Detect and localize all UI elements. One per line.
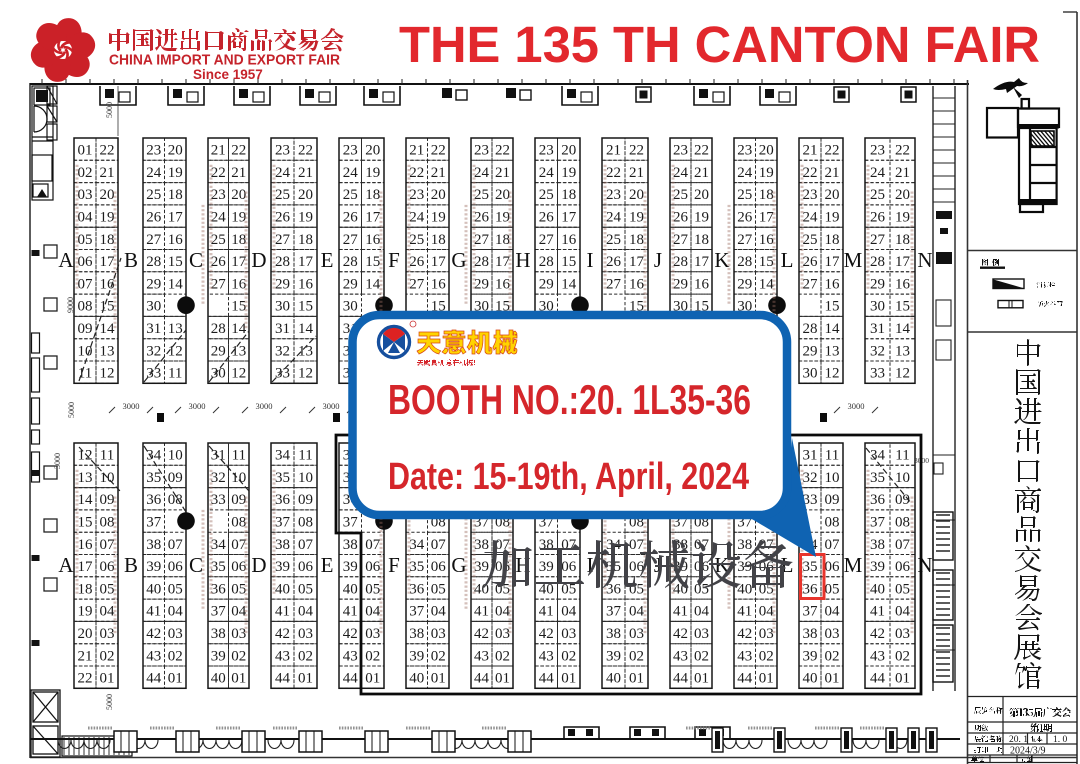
svg-text:37: 37 [870,515,886,531]
svg-text:15: 15 [78,515,93,531]
svg-text:17: 17 [759,210,775,226]
svg-text:41: 41 [275,604,290,620]
svg-text:32: 32 [146,343,161,359]
svg-text:29: 29 [870,276,885,292]
svg-text:23: 23 [673,143,688,159]
svg-text:41: 41 [673,604,688,620]
svg-text:F: F [388,248,400,272]
svg-text:35: 35 [275,470,290,486]
svg-text:22: 22 [629,143,644,159]
svg-text:18: 18 [168,187,183,203]
svg-text:03: 03 [168,626,183,642]
svg-text:05: 05 [231,581,246,597]
svg-text:23: 23 [275,143,290,159]
svg-text:21: 21 [298,165,313,181]
svg-text:26: 26 [474,210,490,226]
svg-text:19: 19 [298,210,313,226]
svg-text:16: 16 [825,276,841,292]
svg-text:37: 37 [606,604,622,620]
svg-text:23: 23 [474,143,489,159]
svg-text:28: 28 [211,321,226,337]
svg-text:05: 05 [694,581,709,597]
svg-text:3000: 3000 [189,401,206,411]
svg-text:42: 42 [539,626,554,642]
svg-text:38: 38 [146,537,161,553]
svg-text:20: 20 [495,187,510,203]
svg-text:17: 17 [895,254,911,270]
svg-text:37: 37 [803,604,819,620]
svg-text:03: 03 [431,626,446,642]
svg-text:11: 11 [895,448,909,464]
svg-text:04: 04 [78,210,94,226]
svg-text:06: 06 [298,559,314,575]
svg-text:40: 40 [870,581,885,597]
svg-text:04: 04 [694,604,710,620]
svg-text:16: 16 [365,232,381,248]
svg-text:44: 44 [673,671,689,687]
svg-text:06: 06 [231,559,247,575]
svg-text:21: 21 [629,165,644,181]
svg-text:42: 42 [673,626,688,642]
svg-text:06: 06 [825,559,841,575]
svg-text:22: 22 [409,165,424,181]
svg-text:26: 26 [803,254,819,270]
svg-text:43: 43 [737,648,752,664]
svg-text:02: 02 [298,648,313,664]
svg-text:04: 04 [431,604,447,620]
svg-text:33: 33 [146,366,161,382]
svg-text:F: F [388,553,400,577]
svg-text:19: 19 [694,210,709,226]
svg-text:16: 16 [100,276,116,292]
svg-text:5000: 5000 [67,402,76,418]
svg-text:17: 17 [168,210,184,226]
svg-text:31: 31 [803,448,818,464]
svg-text:44: 44 [275,671,291,687]
svg-text:36: 36 [870,492,886,508]
svg-text:40: 40 [275,581,290,597]
svg-text:38: 38 [737,537,752,553]
svg-text:02: 02 [895,648,910,664]
svg-text:25: 25 [409,232,424,248]
svg-text:21: 21 [231,165,246,181]
svg-text:10: 10 [168,448,183,464]
svg-text:25: 25 [146,187,161,203]
svg-text:29: 29 [343,276,358,292]
svg-text:01: 01 [365,671,380,687]
svg-text:20: 20 [629,187,644,203]
svg-text:01: 01 [629,671,644,687]
svg-text:44: 44 [343,671,359,687]
svg-text:37: 37 [146,515,162,531]
svg-text:17: 17 [694,254,710,270]
svg-text:21: 21 [100,165,115,181]
svg-text:21: 21 [803,143,818,159]
svg-text:5000: 5000 [105,102,114,118]
svg-text:06: 06 [78,254,94,270]
svg-text:29: 29 [737,276,752,292]
svg-text:28: 28 [803,321,818,337]
svg-text:20: 20 [694,187,709,203]
svg-text:19: 19 [759,165,774,181]
svg-text:37: 37 [211,604,227,620]
svg-text:02: 02 [694,648,709,664]
svg-text:36: 36 [211,581,227,597]
svg-text:16: 16 [231,276,247,292]
svg-text:19: 19 [78,604,93,620]
svg-text:18: 18 [231,232,246,248]
svg-text:27: 27 [803,276,819,292]
svg-text:09: 09 [78,321,93,337]
svg-text:D: D [251,248,266,272]
svg-text:19: 19 [168,165,183,181]
svg-text:04: 04 [298,604,314,620]
svg-text:20: 20 [365,143,380,159]
svg-text:22: 22 [298,143,313,159]
svg-text:13: 13 [168,321,183,337]
svg-text:38: 38 [803,626,818,642]
svg-text:40: 40 [211,671,226,687]
svg-text:08: 08 [895,515,910,531]
svg-text:20: 20 [431,187,446,203]
svg-text:E: E [321,553,334,577]
svg-text:27: 27 [606,276,622,292]
svg-text:04: 04 [825,604,841,620]
svg-text:20: 20 [759,143,774,159]
svg-text:1. 0: 1. 0 [1053,735,1068,745]
svg-text:19: 19 [561,165,576,181]
svg-text:18: 18 [694,232,709,248]
svg-text:34: 34 [211,537,227,553]
svg-text:35: 35 [803,559,818,575]
svg-text:12: 12 [168,343,183,359]
svg-text:A: A [58,553,74,577]
svg-text:06: 06 [431,559,447,575]
svg-text:28: 28 [539,254,554,270]
svg-text:28: 28 [343,254,358,270]
svg-text:20. 1: 20. 1 [1009,735,1028,745]
svg-text:11: 11 [298,448,312,464]
svg-text:26: 26 [146,210,162,226]
svg-text:39: 39 [737,559,752,575]
svg-text:04: 04 [895,604,911,620]
svg-text:18: 18 [561,187,576,203]
svg-text:17: 17 [495,254,511,270]
svg-text:21: 21 [431,165,446,181]
svg-text:42: 42 [737,626,752,642]
svg-text:40: 40 [343,581,358,597]
svg-text:38: 38 [343,537,358,553]
svg-text:21: 21 [895,165,910,181]
svg-text:28: 28 [673,254,688,270]
svg-text:32: 32 [870,343,885,359]
svg-text:02: 02 [168,648,183,664]
svg-text:22: 22 [78,671,93,687]
svg-text:19: 19 [825,210,840,226]
svg-text:24: 24 [275,165,291,181]
svg-text:35: 35 [211,559,226,575]
svg-text:25: 25 [870,187,885,203]
svg-text:18: 18 [629,232,644,248]
svg-text:D: D [251,553,266,577]
svg-text:23: 23 [409,187,424,203]
svg-text:29: 29 [211,343,226,359]
svg-text:L: L [781,248,794,272]
svg-text:30: 30 [870,299,885,315]
svg-text:33: 33 [211,492,226,508]
svg-text:15: 15 [759,254,774,270]
svg-text:9000: 9000 [66,297,75,313]
svg-text:17: 17 [825,254,841,270]
svg-text:26: 26 [737,210,753,226]
svg-text:22: 22 [606,165,621,181]
svg-text:24: 24 [146,165,162,181]
svg-text:15: 15 [100,299,115,315]
svg-text:34: 34 [409,537,425,553]
svg-text:21: 21 [78,648,93,664]
svg-text:38: 38 [474,537,489,553]
svg-text:01: 01 [561,671,576,687]
svg-text:39: 39 [870,559,885,575]
svg-text:25: 25 [343,187,358,203]
svg-text:27: 27 [539,232,555,248]
svg-text:17: 17 [561,210,577,226]
svg-text:41: 41 [539,604,554,620]
svg-text:B: B [124,553,138,577]
svg-text:21: 21 [825,165,840,181]
svg-text:2024/3/9: 2024/3/9 [1010,746,1046,757]
svg-text:24: 24 [211,210,227,226]
svg-text:14: 14 [78,492,94,508]
svg-text:5000: 5000 [105,694,114,710]
svg-text:03: 03 [825,626,840,642]
svg-text:28: 28 [870,254,885,270]
svg-text:14: 14 [561,276,577,292]
svg-text:26: 26 [539,210,555,226]
svg-text:09: 09 [231,492,246,508]
svg-text:20: 20 [78,626,93,642]
svg-text:15: 15 [168,254,183,270]
svg-text:THE 135 TH CANTON FAIR: THE 135 TH CANTON FAIR [399,16,1040,73]
svg-text:16: 16 [759,232,775,248]
svg-text:Since 1957: Since 1957 [193,67,263,82]
svg-text:34: 34 [275,448,291,464]
svg-text:05: 05 [78,232,93,248]
svg-text:BOOTH NO.:20. 1L35-36: BOOTH NO.:20. 1L35-36 [388,376,751,423]
svg-text:02: 02 [231,648,246,664]
svg-text:28: 28 [737,254,752,270]
svg-text:08: 08 [100,515,115,531]
svg-text:03: 03 [895,626,910,642]
svg-text:16: 16 [694,276,710,292]
svg-text:41: 41 [737,604,752,620]
svg-text:12: 12 [78,448,93,464]
svg-text:07: 07 [298,537,314,553]
svg-text:42: 42 [474,626,489,642]
svg-text:39: 39 [474,559,489,575]
svg-text:10: 10 [231,470,246,486]
svg-text:32: 32 [275,343,290,359]
svg-text:44: 44 [146,671,162,687]
svg-text:13: 13 [298,343,313,359]
svg-text:22: 22 [211,165,226,181]
svg-text:19: 19 [431,210,446,226]
svg-text:23: 23 [211,187,226,203]
svg-text:24: 24 [409,210,425,226]
svg-text:27: 27 [673,232,689,248]
svg-text:23: 23 [539,143,554,159]
svg-text:01: 01 [100,671,115,687]
svg-text:03: 03 [231,626,246,642]
svg-text:17: 17 [78,559,94,575]
svg-text:17: 17 [298,254,314,270]
svg-text:07: 07 [100,537,116,553]
svg-text:41: 41 [343,604,358,620]
svg-text:38: 38 [409,626,424,642]
svg-text:09: 09 [100,492,115,508]
svg-text:C: C [189,248,203,272]
svg-text:29: 29 [803,343,818,359]
svg-text:39: 39 [146,559,161,575]
svg-text:38: 38 [606,626,621,642]
svg-text:01: 01 [78,143,93,159]
svg-text:25: 25 [211,232,226,248]
svg-text:21: 21 [606,143,621,159]
svg-text:H: H [515,248,530,272]
svg-text:17: 17 [100,254,116,270]
svg-text:36: 36 [409,581,425,597]
svg-text:03: 03 [694,626,709,642]
svg-text:39: 39 [343,559,358,575]
svg-text:17: 17 [231,254,247,270]
svg-text:27: 27 [211,276,227,292]
svg-text:16: 16 [168,232,184,248]
svg-text:15: 15 [298,299,313,315]
svg-text:37: 37 [343,515,359,531]
svg-text:24: 24 [737,165,753,181]
svg-text:26: 26 [343,210,359,226]
svg-text:15: 15 [895,299,910,315]
svg-text:09: 09 [895,492,910,508]
svg-text:3000: 3000 [323,401,340,411]
svg-text:33: 33 [870,366,885,382]
svg-text:41: 41 [146,604,161,620]
svg-text:24: 24 [870,165,886,181]
svg-text:20: 20 [100,187,115,203]
svg-text:J: J [654,248,662,272]
svg-text:23: 23 [803,187,818,203]
svg-text:3000: 3000 [53,453,62,469]
svg-text:02: 02 [561,648,576,664]
svg-text:07: 07 [431,537,447,553]
svg-text:07: 07 [825,537,841,553]
svg-text:44: 44 [870,671,886,687]
svg-text:31: 31 [275,321,290,337]
svg-text:12: 12 [100,366,115,382]
svg-text:10: 10 [895,470,910,486]
svg-text:03: 03 [100,626,115,642]
svg-text:29: 29 [539,276,554,292]
svg-text:22: 22 [495,143,510,159]
svg-text:G: G [451,248,466,272]
svg-text:18: 18 [78,581,93,597]
svg-text:27: 27 [474,232,490,248]
svg-text:17: 17 [629,254,645,270]
svg-text:14: 14 [365,276,381,292]
svg-text:31: 31 [146,321,161,337]
svg-text:36: 36 [146,492,162,508]
svg-text:01: 01 [168,671,183,687]
svg-text:42: 42 [275,626,290,642]
svg-text:18: 18 [495,232,510,248]
svg-text:24: 24 [606,210,622,226]
svg-text:40: 40 [606,671,621,687]
svg-text:12: 12 [298,366,313,382]
svg-text:09: 09 [825,492,840,508]
svg-text:28: 28 [275,254,290,270]
svg-text:41: 41 [474,604,489,620]
svg-text:10: 10 [78,343,93,359]
svg-text:05: 05 [298,581,313,597]
svg-text:04: 04 [759,604,775,620]
svg-text:01: 01 [231,671,246,687]
svg-text:20: 20 [895,187,910,203]
svg-text:A: A [58,248,74,272]
svg-text:43: 43 [146,648,161,664]
svg-text:35: 35 [146,470,161,486]
svg-text:G: G [451,553,466,577]
svg-text:24: 24 [474,165,490,181]
svg-text:37: 37 [275,515,291,531]
svg-text:16: 16 [298,276,314,292]
svg-text:07: 07 [78,276,94,292]
svg-text:05: 05 [825,581,840,597]
svg-text:06: 06 [168,559,184,575]
svg-text:08: 08 [78,299,93,315]
svg-text:14: 14 [298,321,314,337]
svg-text:01: 01 [694,671,709,687]
svg-text:23: 23 [606,187,621,203]
svg-text:03: 03 [561,626,576,642]
svg-text:07: 07 [629,537,645,553]
svg-text:09: 09 [298,492,313,508]
svg-text:20: 20 [168,143,183,159]
svg-text:01: 01 [495,671,510,687]
svg-text:01: 01 [825,671,840,687]
svg-text:01: 01 [431,671,446,687]
svg-text:07: 07 [495,537,511,553]
svg-text:08: 08 [231,515,246,531]
svg-text:11: 11 [232,448,246,464]
svg-text:12: 12 [895,366,910,382]
svg-text:04: 04 [168,604,184,620]
svg-text:28: 28 [474,254,489,270]
svg-text:35: 35 [870,470,885,486]
svg-text:05: 05 [100,581,115,597]
svg-text:17: 17 [365,210,381,226]
svg-text:22: 22 [431,143,446,159]
svg-text:02: 02 [825,648,840,664]
svg-text:36: 36 [275,492,291,508]
svg-text:06: 06 [365,559,381,575]
svg-text:44: 44 [474,671,490,687]
svg-text:42: 42 [146,626,161,642]
svg-text:26: 26 [870,210,886,226]
svg-text:38: 38 [275,537,290,553]
svg-text:10: 10 [298,470,313,486]
svg-text:27: 27 [275,232,291,248]
svg-text:20: 20 [231,187,246,203]
